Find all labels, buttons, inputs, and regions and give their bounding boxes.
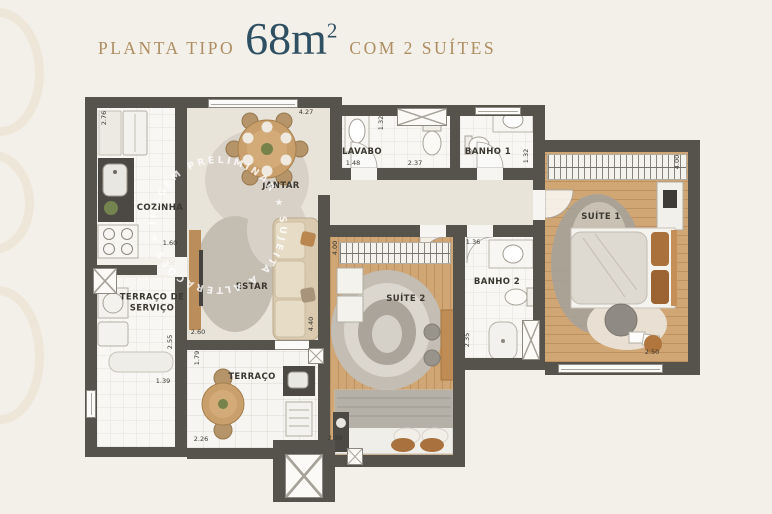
service-window bbox=[93, 268, 117, 294]
door-opening bbox=[533, 190, 545, 220]
dimension-label: 1.32 bbox=[377, 116, 385, 130]
shower-door bbox=[522, 320, 540, 360]
dimension-label: 4.00 bbox=[331, 241, 339, 255]
door-opening bbox=[467, 225, 493, 237]
room-label-terraco: TERRAÇO bbox=[228, 372, 276, 382]
title-area-exponent: 2 bbox=[327, 19, 338, 43]
dimension-label: 4.27 bbox=[299, 108, 313, 116]
window bbox=[208, 99, 298, 108]
left-border-ornament bbox=[0, 286, 44, 424]
dimension-label: 4.00 bbox=[673, 155, 681, 169]
dimension-label: 1.79 bbox=[193, 351, 201, 365]
kitchen-furniture bbox=[98, 111, 147, 258]
dimension-label: 2.50 bbox=[645, 348, 659, 356]
window bbox=[86, 390, 96, 418]
suite-1-closet bbox=[547, 154, 687, 180]
wall bbox=[318, 195, 330, 467]
elevator-shaft bbox=[285, 454, 323, 498]
title-area: 68m2 bbox=[245, 16, 337, 62]
door-opening bbox=[420, 225, 446, 237]
dimension-label: 1.36 bbox=[466, 238, 480, 246]
left-border-ornament bbox=[0, 8, 44, 136]
wall bbox=[85, 447, 187, 457]
svg-text:IMAGEM PRELIMINAR ★ SUJEITA A: IMAGEM PRELIMINAR ★ SUJEITA A ALTERAÇÕES… bbox=[148, 155, 288, 295]
left-border-ornament bbox=[0, 150, 34, 254]
dimension-label: 2.35 bbox=[463, 333, 471, 347]
wall bbox=[688, 140, 700, 375]
sliding-door bbox=[275, 340, 309, 350]
dimension-label: 2.55 bbox=[166, 335, 174, 349]
floor-plan: COZINHA TERRAÇO DE SERVIÇO JANTAR ESTAR … bbox=[85, 92, 701, 504]
dimension-label: 1.48 bbox=[346, 159, 360, 167]
title-prefix: PLANTA TIPO bbox=[98, 38, 235, 59]
room-label-banho-1: BANHO 1 bbox=[465, 147, 511, 157]
title-suffix: COM 2 SUÍTES bbox=[349, 38, 496, 59]
dimension-label: 1.32 bbox=[522, 149, 530, 163]
door-opening bbox=[477, 168, 503, 180]
dimension-label: 2.38 bbox=[328, 434, 342, 442]
room-label-banho-2: BANHO 2 bbox=[474, 277, 520, 287]
dimension-label: 2.37 bbox=[408, 159, 422, 167]
room-label-terraco-servico: TERRAÇO DE SERVIÇO bbox=[114, 292, 190, 313]
suite-2-closet bbox=[339, 242, 451, 264]
wall bbox=[533, 140, 700, 152]
room-label-suite-2: SUÍTE 2 bbox=[386, 294, 425, 304]
wall bbox=[450, 105, 460, 168]
dimension-label: 2.26 bbox=[194, 435, 208, 443]
dimension-label: 1.39 bbox=[156, 377, 170, 385]
floor-plan-page: PLANTA TIPO 68m2 COM 2 SUÍTES bbox=[0, 0, 772, 514]
plan-title: PLANTA TIPO 68m2 COM 2 SUÍTES bbox=[98, 16, 496, 62]
duct-shaft bbox=[397, 108, 447, 126]
dimension-label: 4.40 bbox=[307, 317, 315, 331]
dimension-label: 2.60 bbox=[191, 328, 205, 336]
room-label-lavabo: LAVABO bbox=[342, 147, 382, 157]
duct-shaft bbox=[347, 448, 363, 465]
watermark-text: IMAGEM PRELIMINAR ★ SUJEITA A ALTERAÇÕES… bbox=[148, 155, 288, 295]
room-label-suite-1: SUÍTE 1 bbox=[581, 212, 620, 222]
watermark: IMAGEM PRELIMINAR ★ SUJEITA A ALTERAÇÕES… bbox=[148, 155, 288, 295]
door-opening bbox=[351, 168, 377, 180]
window bbox=[558, 364, 663, 373]
duct-shaft bbox=[308, 348, 324, 364]
window bbox=[475, 107, 521, 115]
dimension-label: 2.76 bbox=[100, 111, 108, 125]
